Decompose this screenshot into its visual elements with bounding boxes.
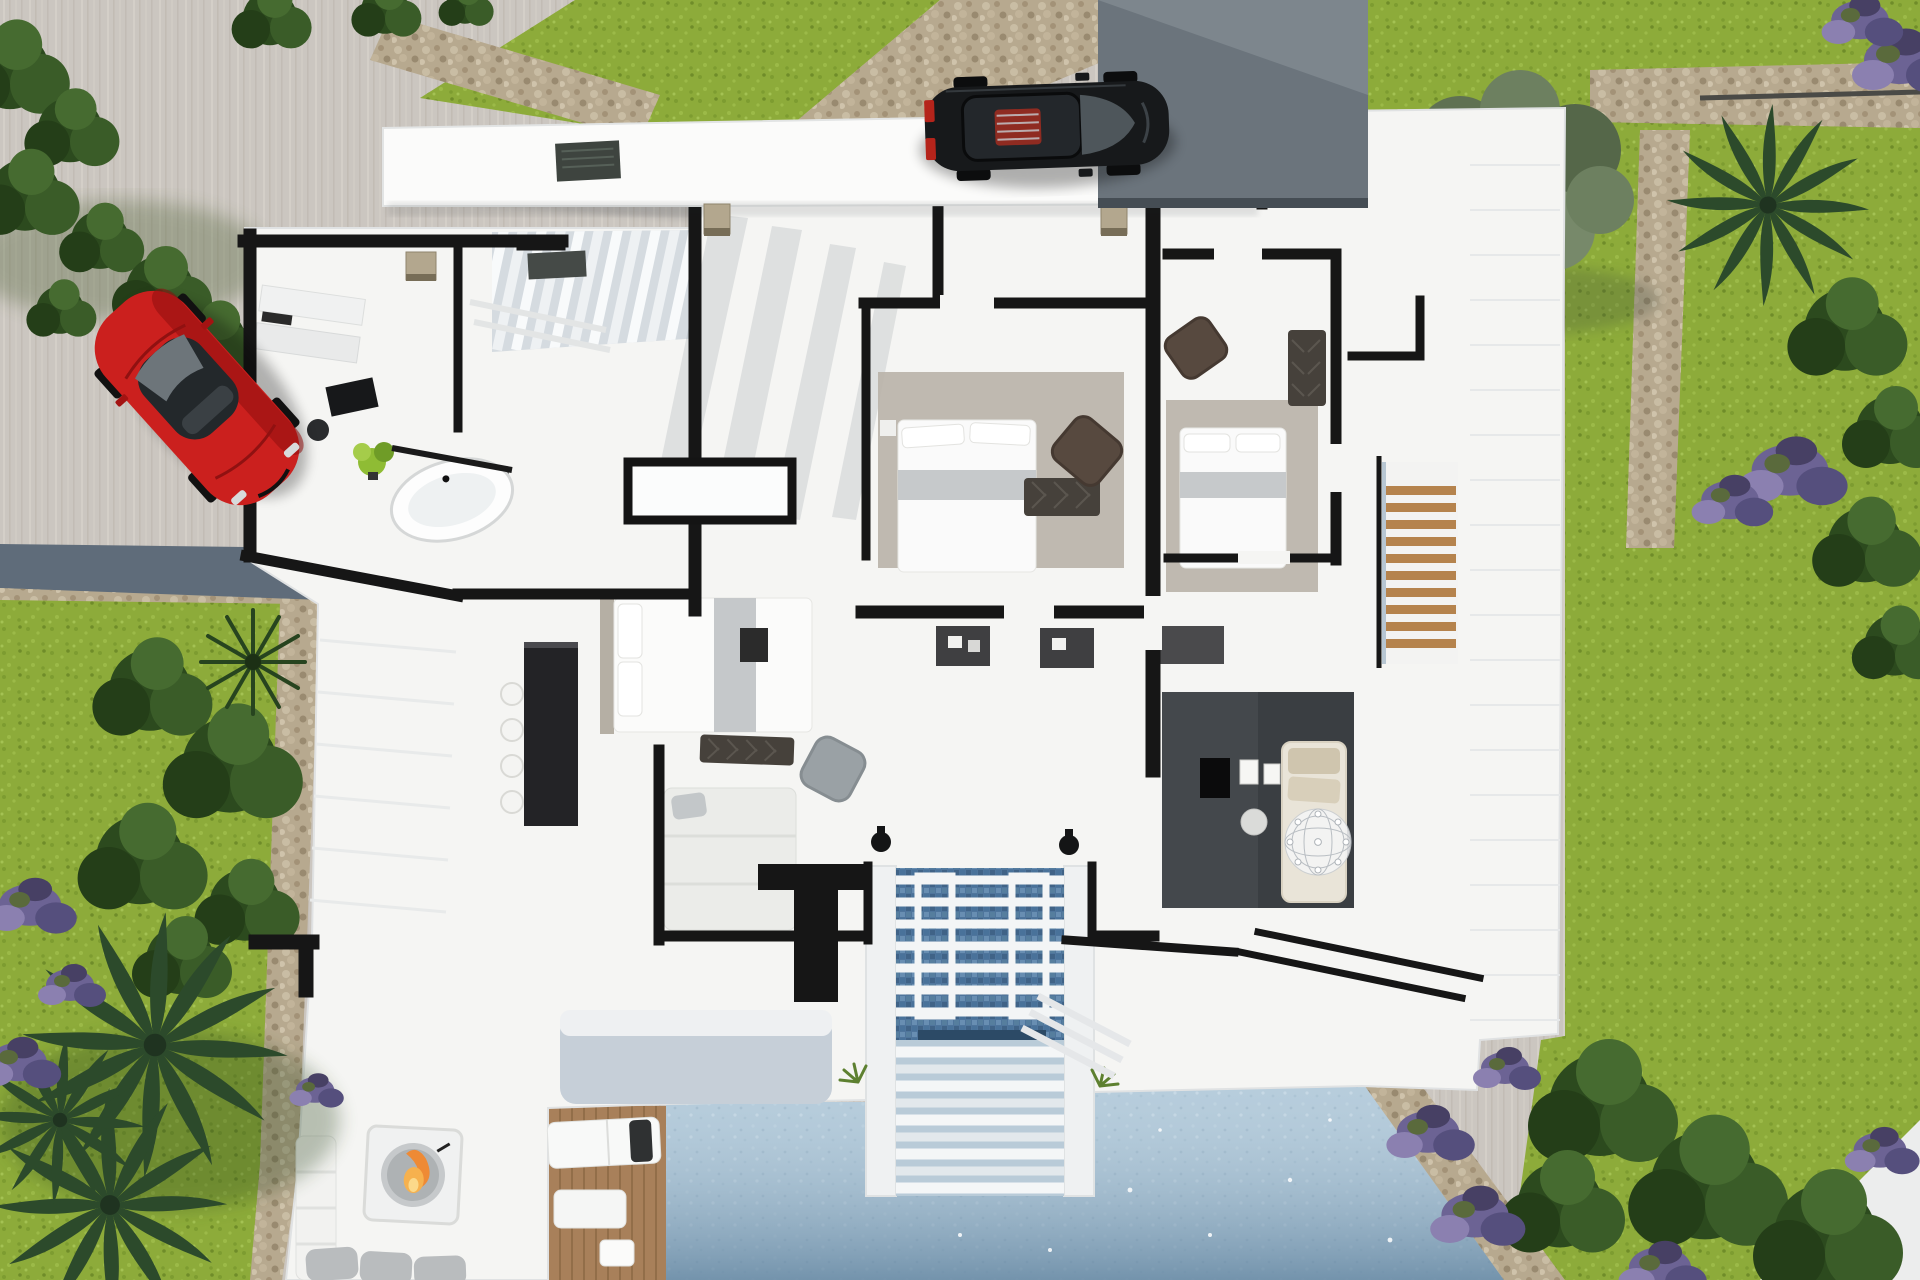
picture-frame: [1240, 760, 1258, 784]
living-room: [1162, 692, 1354, 908]
family-lounge: [664, 788, 796, 930]
tufted-bench: [700, 734, 795, 765]
pillow: [1184, 434, 1230, 452]
pillow: [970, 422, 1031, 445]
picture-frame: [1264, 764, 1280, 784]
roof-vent: [555, 140, 621, 181]
lounger-cushion: [629, 1119, 653, 1162]
car-taillight: [925, 138, 936, 160]
sun-lounger: [554, 1190, 626, 1228]
pool-steps: [840, 866, 1118, 1196]
car-taillight: [924, 100, 935, 122]
bedroom-right-bed: [1180, 428, 1286, 568]
black-side-table: [740, 628, 768, 662]
bed-throw: [898, 470, 1036, 500]
bedroom-center: [878, 372, 1127, 572]
vanity-stool: [307, 419, 329, 441]
throw-pillow: [670, 792, 707, 820]
wall-sconce: [704, 204, 730, 236]
bed-throw: [714, 598, 756, 732]
pillow: [901, 424, 964, 448]
wall-sconce: [1101, 204, 1127, 236]
master-bed: [614, 598, 812, 732]
sofa-cushion: [1287, 776, 1341, 804]
nightstand: [880, 420, 896, 436]
fire-pit: [364, 1126, 463, 1225]
wardrobe-cabinet-top: [524, 642, 578, 648]
wire-chandelier: [1285, 809, 1351, 875]
deck-table: [600, 1240, 634, 1266]
wood-staircase: [1379, 456, 1458, 668]
pillow: [618, 662, 642, 716]
bedroom-center-bed: [898, 420, 1036, 572]
side-table: [1241, 809, 1267, 835]
wall-sconce: [406, 252, 436, 281]
car-engine-cover: [962, 93, 1082, 161]
pillow: [1236, 434, 1280, 452]
ac-unit: [527, 251, 586, 280]
tv-screen: [1200, 758, 1230, 798]
headboard: [600, 596, 614, 734]
black-sports-car: [917, 70, 1177, 193]
sofa-cushion: [1288, 748, 1340, 774]
master-window: [628, 462, 792, 520]
step-treads: [896, 1052, 1064, 1188]
terrace-edge-top: [560, 1010, 832, 1036]
pillow: [618, 604, 642, 658]
car-mirror: [1075, 72, 1089, 80]
villa-aerial-render: [0, 0, 1920, 1280]
wardrobe-cabinet: [524, 642, 578, 826]
bed-throw: [1180, 472, 1286, 498]
car-mirror: [1079, 168, 1093, 176]
scene-canvas: [0, 0, 1920, 1280]
console-cabinet: [1160, 626, 1224, 664]
